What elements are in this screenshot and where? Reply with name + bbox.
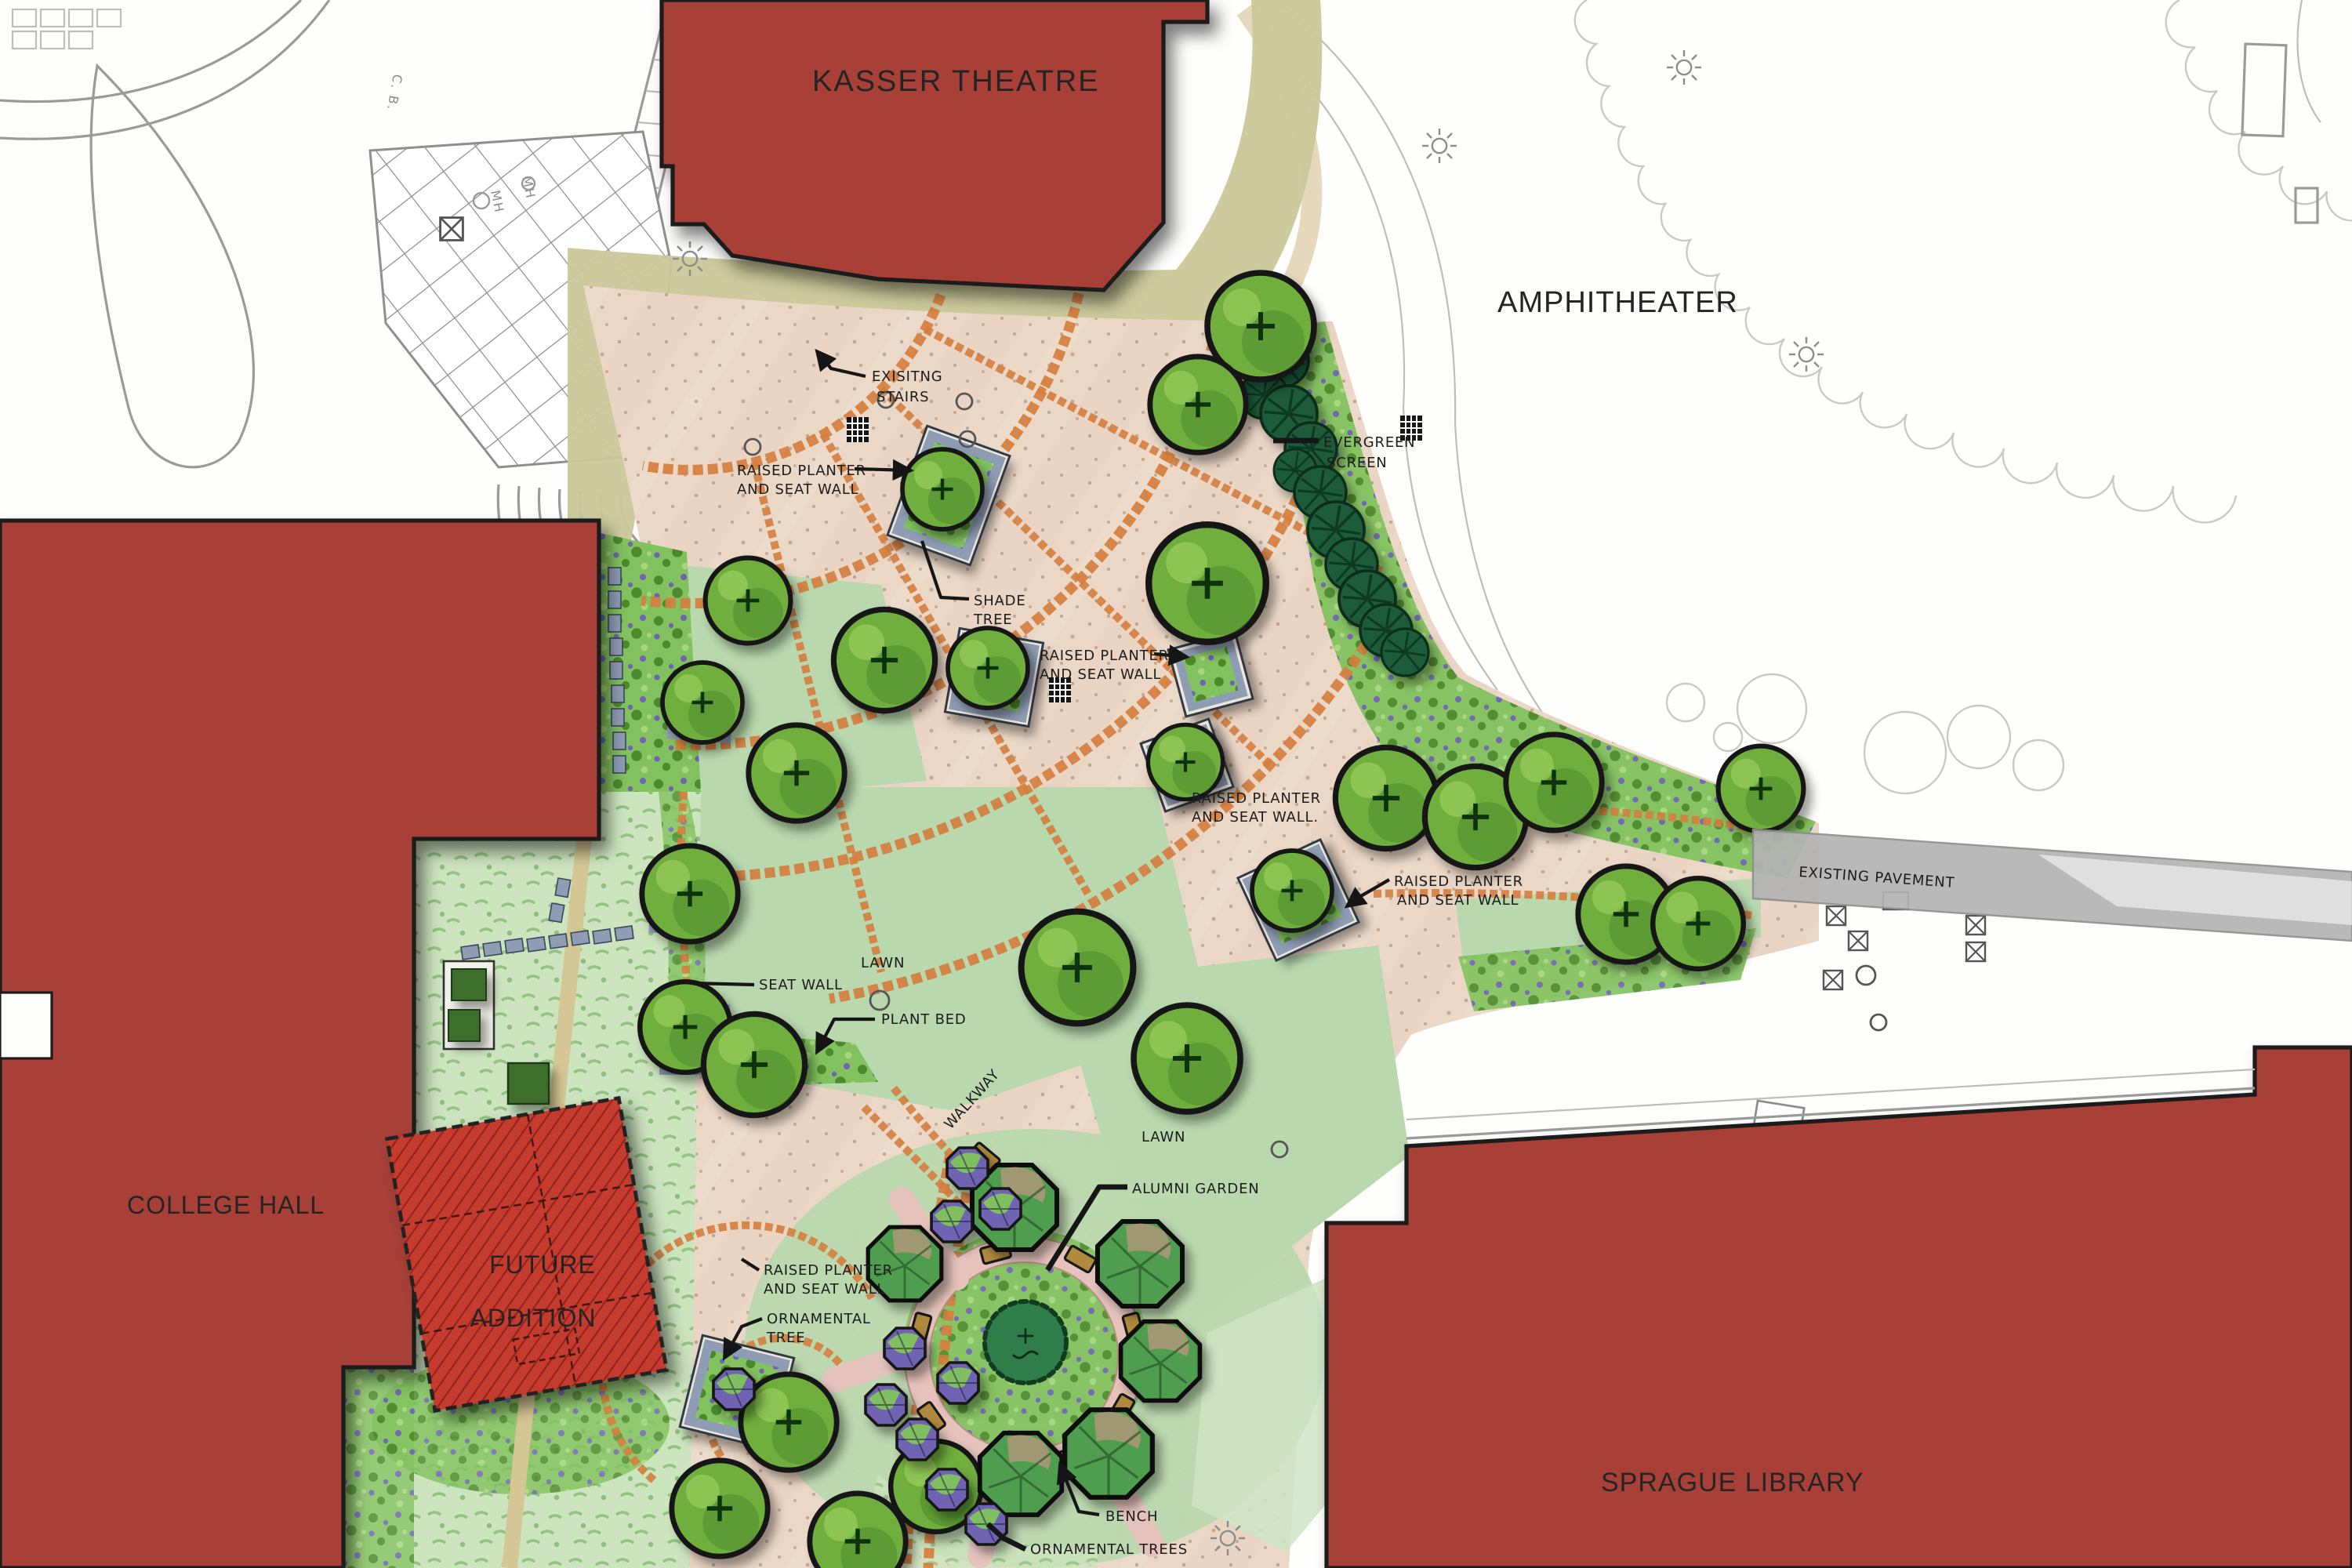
square-planter bbox=[508, 1063, 549, 1104]
garden-tree-icon bbox=[1065, 1410, 1152, 1497]
callout-text: ORNAMENTAL bbox=[767, 1311, 871, 1327]
evergreen-tree-icon bbox=[1381, 629, 1428, 676]
shade-tree-icon bbox=[1150, 357, 1246, 452]
callout-text: RAISED PLANTER bbox=[764, 1262, 893, 1279]
shade-tree-icon bbox=[706, 558, 791, 644]
shade-tree-icon bbox=[662, 662, 742, 742]
callout-text: AND SEAT WALL bbox=[1040, 666, 1161, 683]
future-addition-label-1: FUTURE bbox=[489, 1250, 596, 1279]
sprague-library-label: SPRAGUE LIBRARY bbox=[1601, 1468, 1864, 1497]
shade-tree-icon bbox=[1149, 524, 1266, 642]
shade-tree-icon bbox=[1134, 1005, 1240, 1112]
callout-text: TREE bbox=[766, 1330, 805, 1346]
callout-text: AND SEAT WALL bbox=[1397, 892, 1519, 909]
callout-text: STAIRS bbox=[877, 389, 929, 405]
callout-raised-planter-5: RAISED PLANTER AND SEAT WALL bbox=[742, 1259, 893, 1298]
ornamental-tree-icon bbox=[927, 1469, 967, 1510]
survey-box-icon bbox=[1827, 906, 1846, 925]
lawn-upper-label: LAWN bbox=[861, 955, 905, 971]
garden-tree-icon bbox=[1098, 1221, 1182, 1306]
shade-tree-icon bbox=[1148, 724, 1222, 799]
shade-tree-icon bbox=[833, 609, 935, 710]
shade-tree-icon bbox=[810, 1494, 906, 1568]
callout-text: SCREEN bbox=[1327, 455, 1388, 471]
callout-text: BENCH bbox=[1105, 1508, 1158, 1525]
amphitheater-label: AMPHITHEATER bbox=[1497, 286, 1738, 319]
shade-tree-icon bbox=[672, 1461, 768, 1556]
callout-text: AND SEAT WALL. bbox=[1192, 809, 1319, 826]
survey-box-icon bbox=[1849, 931, 1867, 950]
future-addition-label-2: ADDITION bbox=[470, 1304, 597, 1332]
callout-text: ORNAMENTAL TREES bbox=[1030, 1541, 1188, 1558]
callout-text: SEAT WALL bbox=[759, 977, 843, 993]
survey-box-icon bbox=[441, 218, 463, 241]
callout-text: SHADE bbox=[974, 593, 1026, 609]
shade-tree-icon bbox=[1719, 746, 1804, 832]
callout-text: RAISED PLANTER bbox=[1040, 648, 1169, 664]
callout-text: AND SEAT WALL bbox=[737, 481, 858, 498]
ornamental-tree-icon bbox=[866, 1385, 906, 1425]
ornamental-tree-icon bbox=[947, 1148, 988, 1189]
callout-text: ALUMNI GARDEN bbox=[1132, 1181, 1260, 1197]
shade-tree-icon bbox=[948, 628, 1028, 708]
survey-box-icon bbox=[1966, 942, 1985, 961]
ornamental-tree-icon bbox=[938, 1363, 978, 1403]
survey-box-icon bbox=[1966, 916, 1985, 935]
callout-text: AND SEAT WALL bbox=[764, 1281, 885, 1298]
survey-box-icon bbox=[1824, 971, 1842, 989]
kasser-theatre-label: KASSER THEATRE bbox=[812, 65, 1100, 98]
shade-tree-icon bbox=[902, 449, 982, 529]
shade-tree-icon bbox=[642, 846, 738, 942]
callout-text: RAISED PLANTER bbox=[1394, 873, 1523, 890]
site-plan-drawing: EXISTING PAVEMENT KASSER THEATRE AMPHITH… bbox=[0, 0, 2352, 1568]
callout-text: RAISED PLANTER bbox=[737, 463, 866, 479]
shade-tree-icon bbox=[703, 1014, 804, 1115]
callout-text: EXISITNG bbox=[872, 368, 943, 385]
shade-tree-icon bbox=[1022, 912, 1134, 1024]
ornamental-tree-icon bbox=[931, 1201, 972, 1242]
lawn-lower-label: LAWN bbox=[1142, 1129, 1185, 1145]
shade-tree-icon bbox=[1506, 735, 1602, 830]
ornamental-tree-icon bbox=[980, 1189, 1021, 1229]
shade-tree-icon bbox=[1653, 878, 1744, 969]
garden-tree-icon bbox=[1121, 1322, 1200, 1401]
kasser-theatre-building bbox=[662, 0, 1207, 290]
callout-text: PLANT BED bbox=[881, 1011, 967, 1028]
shade-tree-icon bbox=[1252, 851, 1332, 931]
callout-text: TREE bbox=[973, 612, 1012, 628]
college-hall-label: COLLEGE HALL bbox=[127, 1191, 325, 1219]
ornamental-tree-icon bbox=[884, 1328, 925, 1369]
catch-basin-icon bbox=[847, 417, 869, 442]
site-plan: EXISTING PAVEMENT KASSER THEATRE AMPHITH… bbox=[0, 0, 2352, 1568]
shade-tree-icon bbox=[1335, 747, 1436, 848]
callout-text: EVERGREEN bbox=[1323, 434, 1415, 451]
ornamental-tree-icon bbox=[713, 1369, 754, 1410]
shade-tree-icon bbox=[749, 725, 844, 821]
ornamental-tree-icon bbox=[897, 1419, 938, 1460]
callout-text: RAISED PLANTER bbox=[1192, 790, 1321, 807]
